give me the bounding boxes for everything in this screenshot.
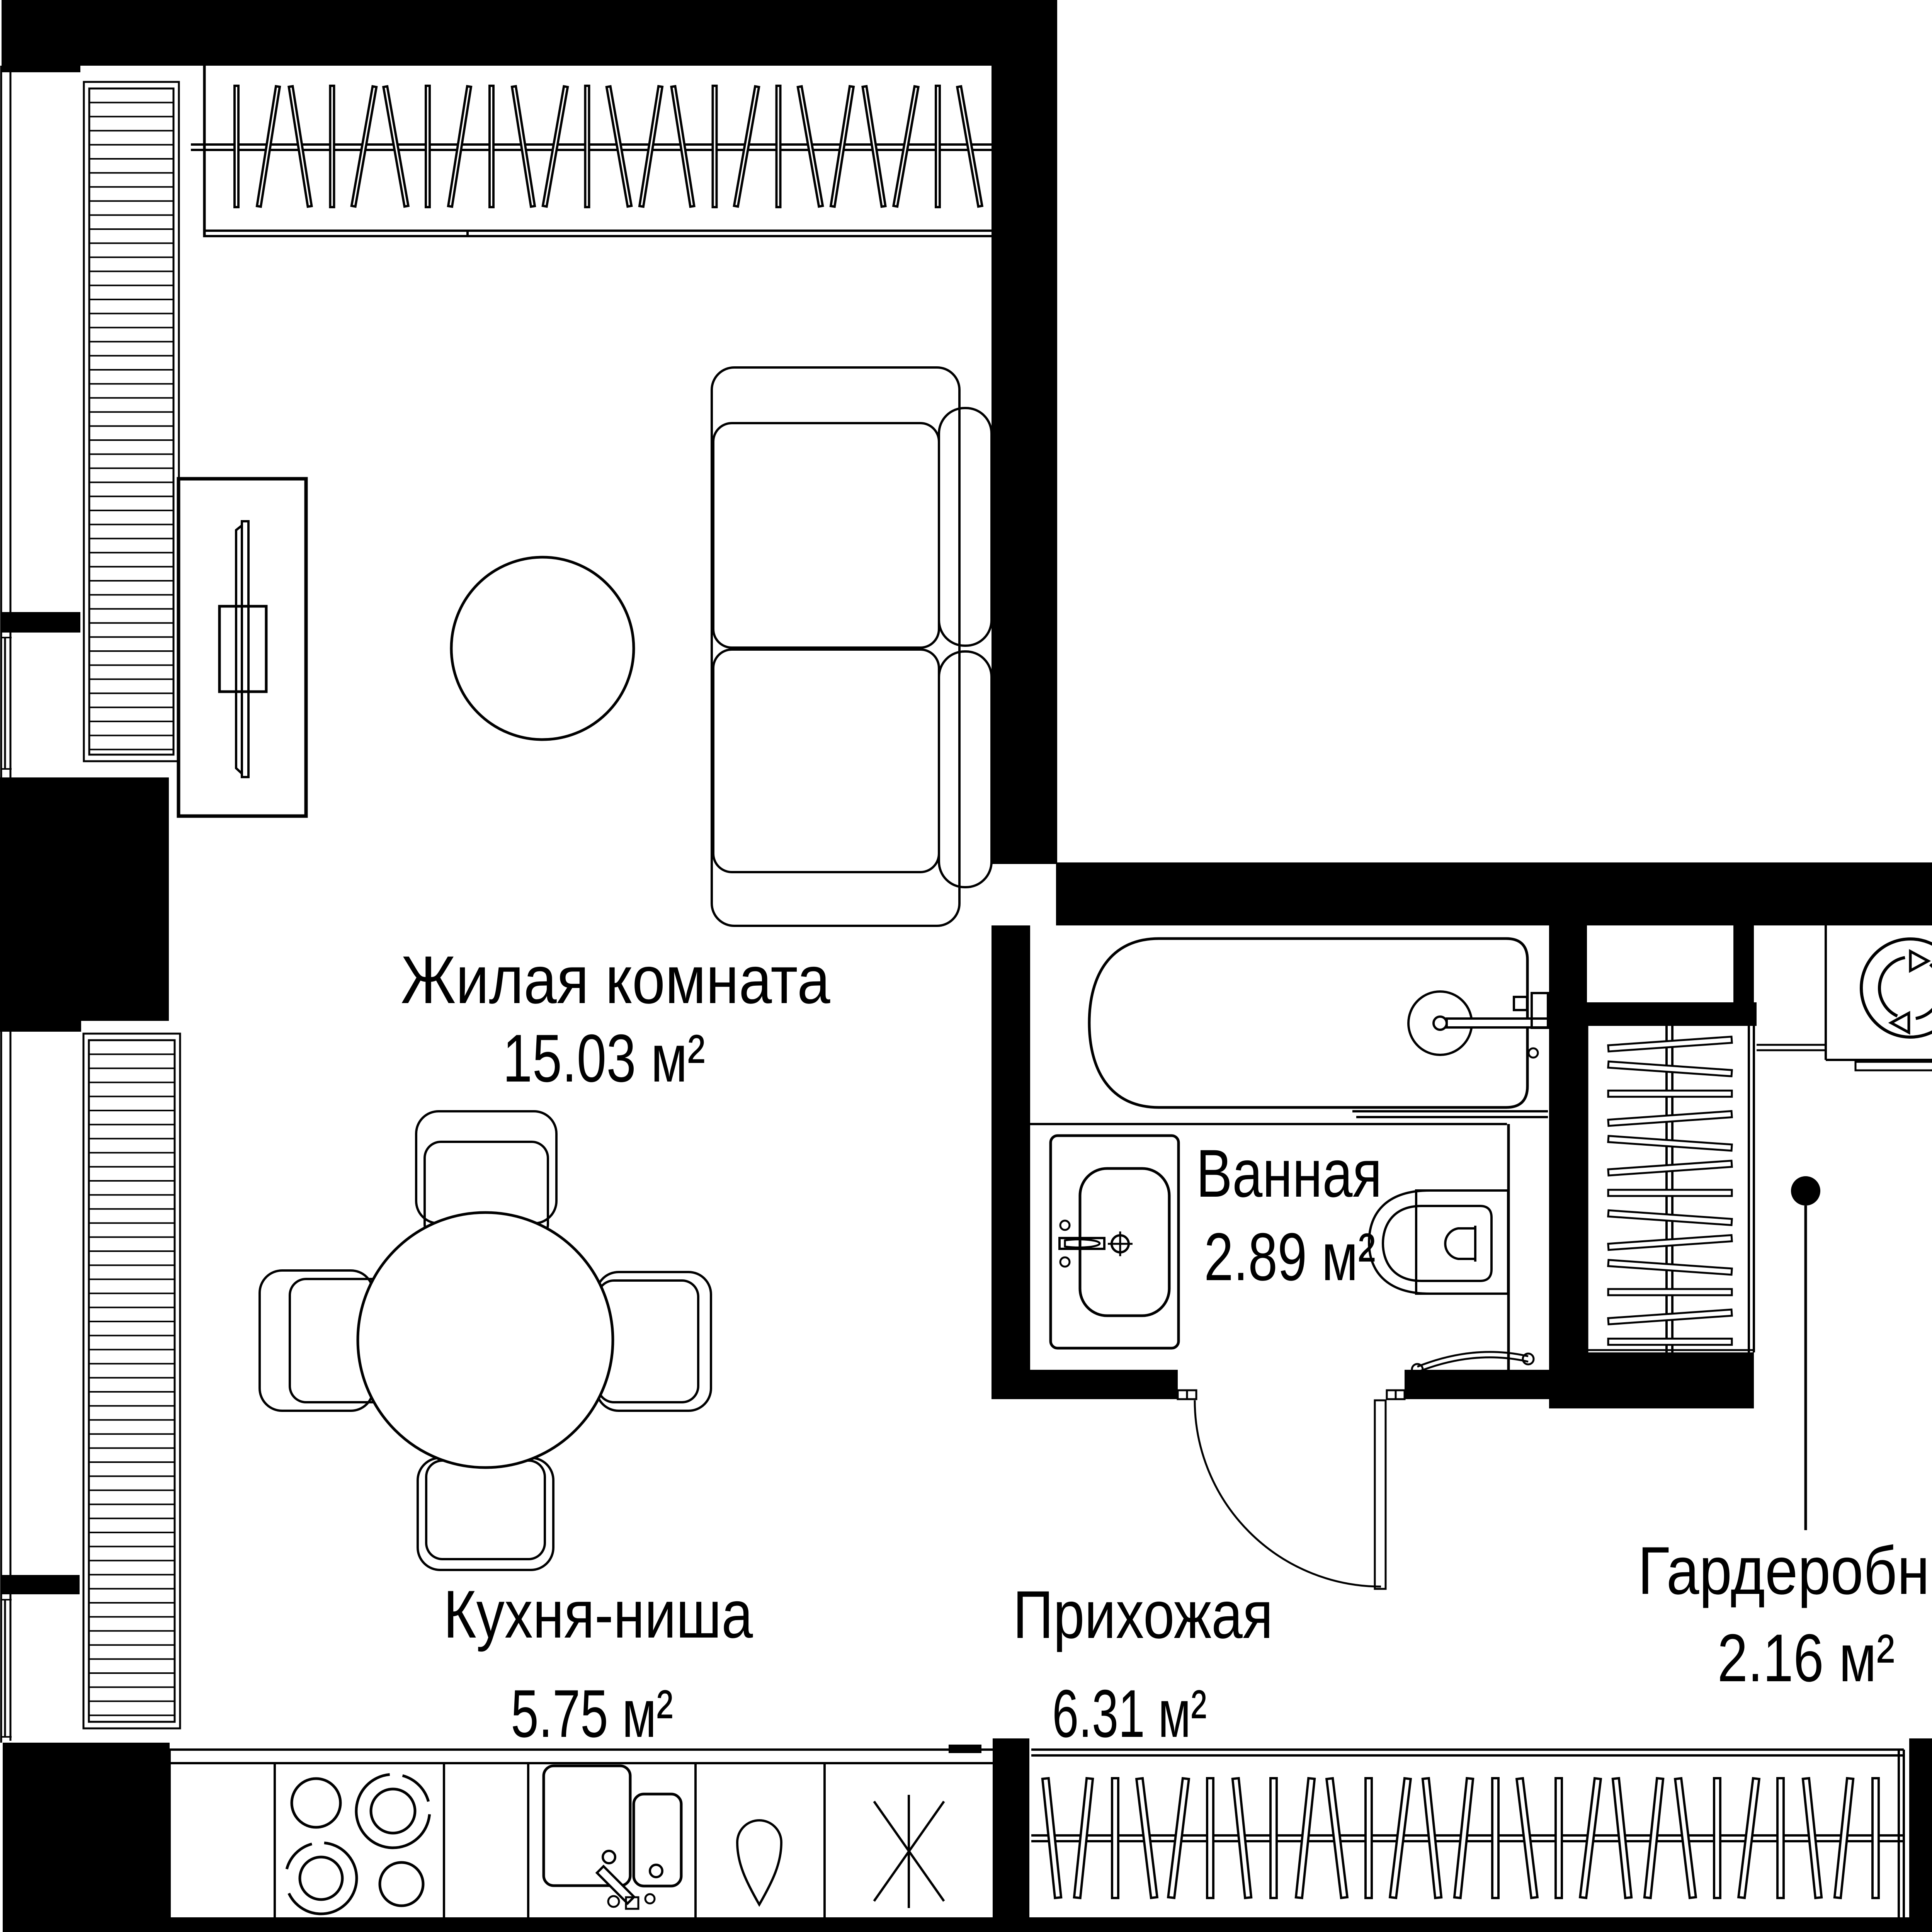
svg-text:Кухня-ниша: Кухня-ниша: [444, 1577, 753, 1652]
svg-text:Прихожая: Прихожая: [1013, 1577, 1273, 1653]
svg-text:2.89 м²: 2.89 м²: [1204, 1219, 1376, 1295]
svg-text:2.16 м²: 2.16 м²: [1718, 1621, 1895, 1696]
svg-text:5.75 м²: 5.75 м²: [511, 1676, 673, 1752]
svg-text:15.03 м²: 15.03 м²: [503, 1021, 705, 1096]
svg-text:Гардеробная: Гардеробная: [1638, 1533, 1932, 1609]
svg-text:6.31 м²: 6.31 м²: [1052, 1676, 1207, 1752]
svg-text:Ванная: Ванная: [1196, 1136, 1382, 1211]
svg-text:Жилая комната: Жилая комната: [401, 942, 831, 1018]
